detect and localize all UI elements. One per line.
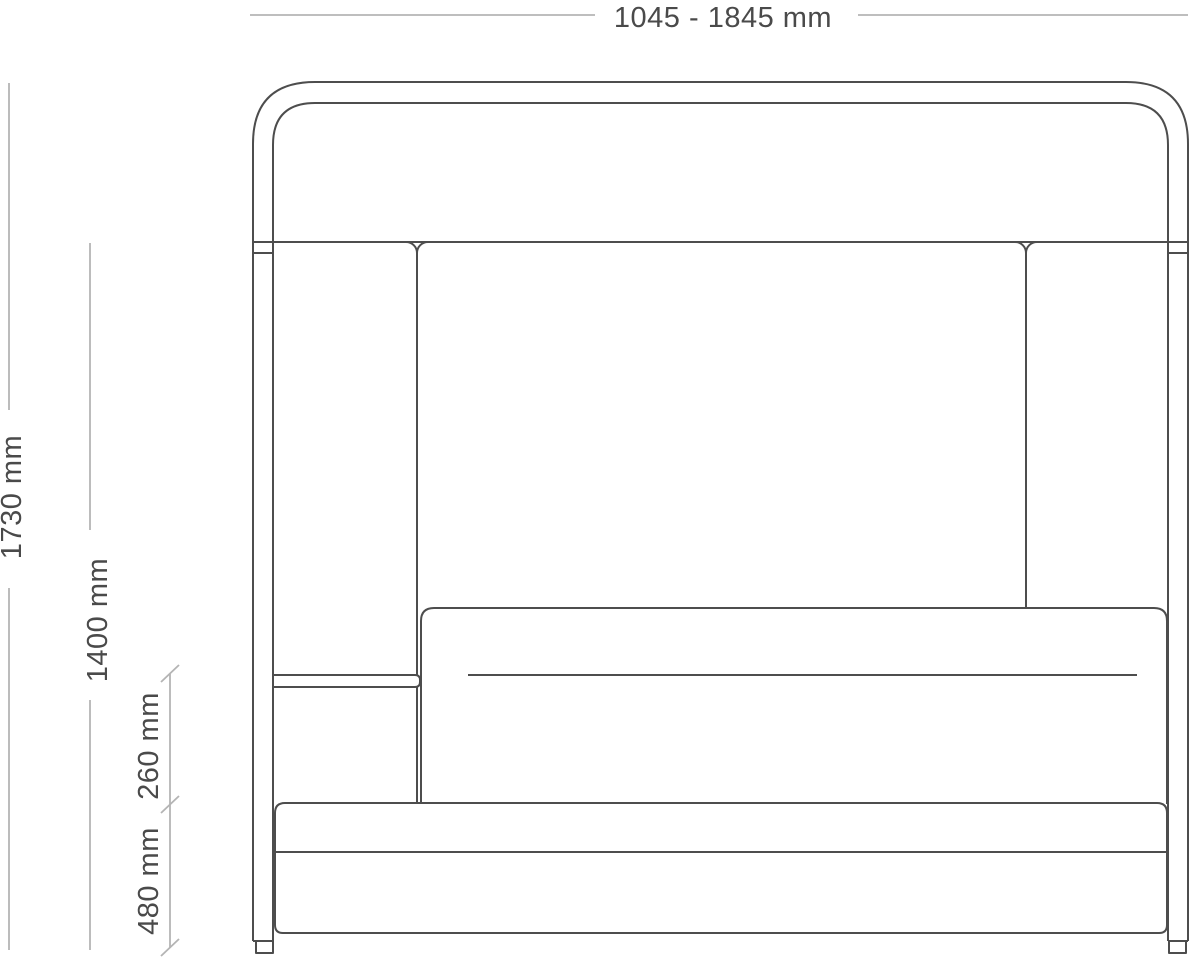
- dimension-back-height: 1400 mm: [82, 243, 114, 950]
- left-back-seam: [406, 242, 417, 803]
- furniture-dimension-drawing: 1045 - 1845 mm 1730 mm 1400 mm 260 mm: [0, 0, 1199, 958]
- left-back-seam-right-fillet: [417, 242, 428, 253]
- width-dimension-label: 1045 - 1845 mm: [614, 2, 832, 34]
- total-height-label: 1730 mm: [0, 435, 28, 559]
- side-shelf: [273, 675, 420, 687]
- shelf-to-seat-label: 260 mm: [133, 692, 165, 800]
- right-back-seam-right-fillet: [1026, 242, 1037, 253]
- furniture-drawing: [253, 82, 1188, 953]
- seat-cushion: [421, 608, 1167, 804]
- dimension-width: 1045 - 1845 mm: [250, 2, 1188, 34]
- seat-height-label: 480 mm: [133, 827, 165, 935]
- back-height-label: 1400 mm: [82, 558, 114, 682]
- right-foot: [1169, 941, 1186, 953]
- drawing-canvas: 1045 - 1845 mm 1730 mm 1400 mm 260 mm: [0, 0, 1199, 958]
- dimension-inner-heights: 260 mm 480 mm: [133, 665, 179, 956]
- dimension-total-height: 1730 mm: [0, 83, 28, 950]
- seat-base-outline: [275, 803, 1167, 933]
- left-foot: [256, 941, 273, 953]
- right-back-seam: [1015, 242, 1026, 607]
